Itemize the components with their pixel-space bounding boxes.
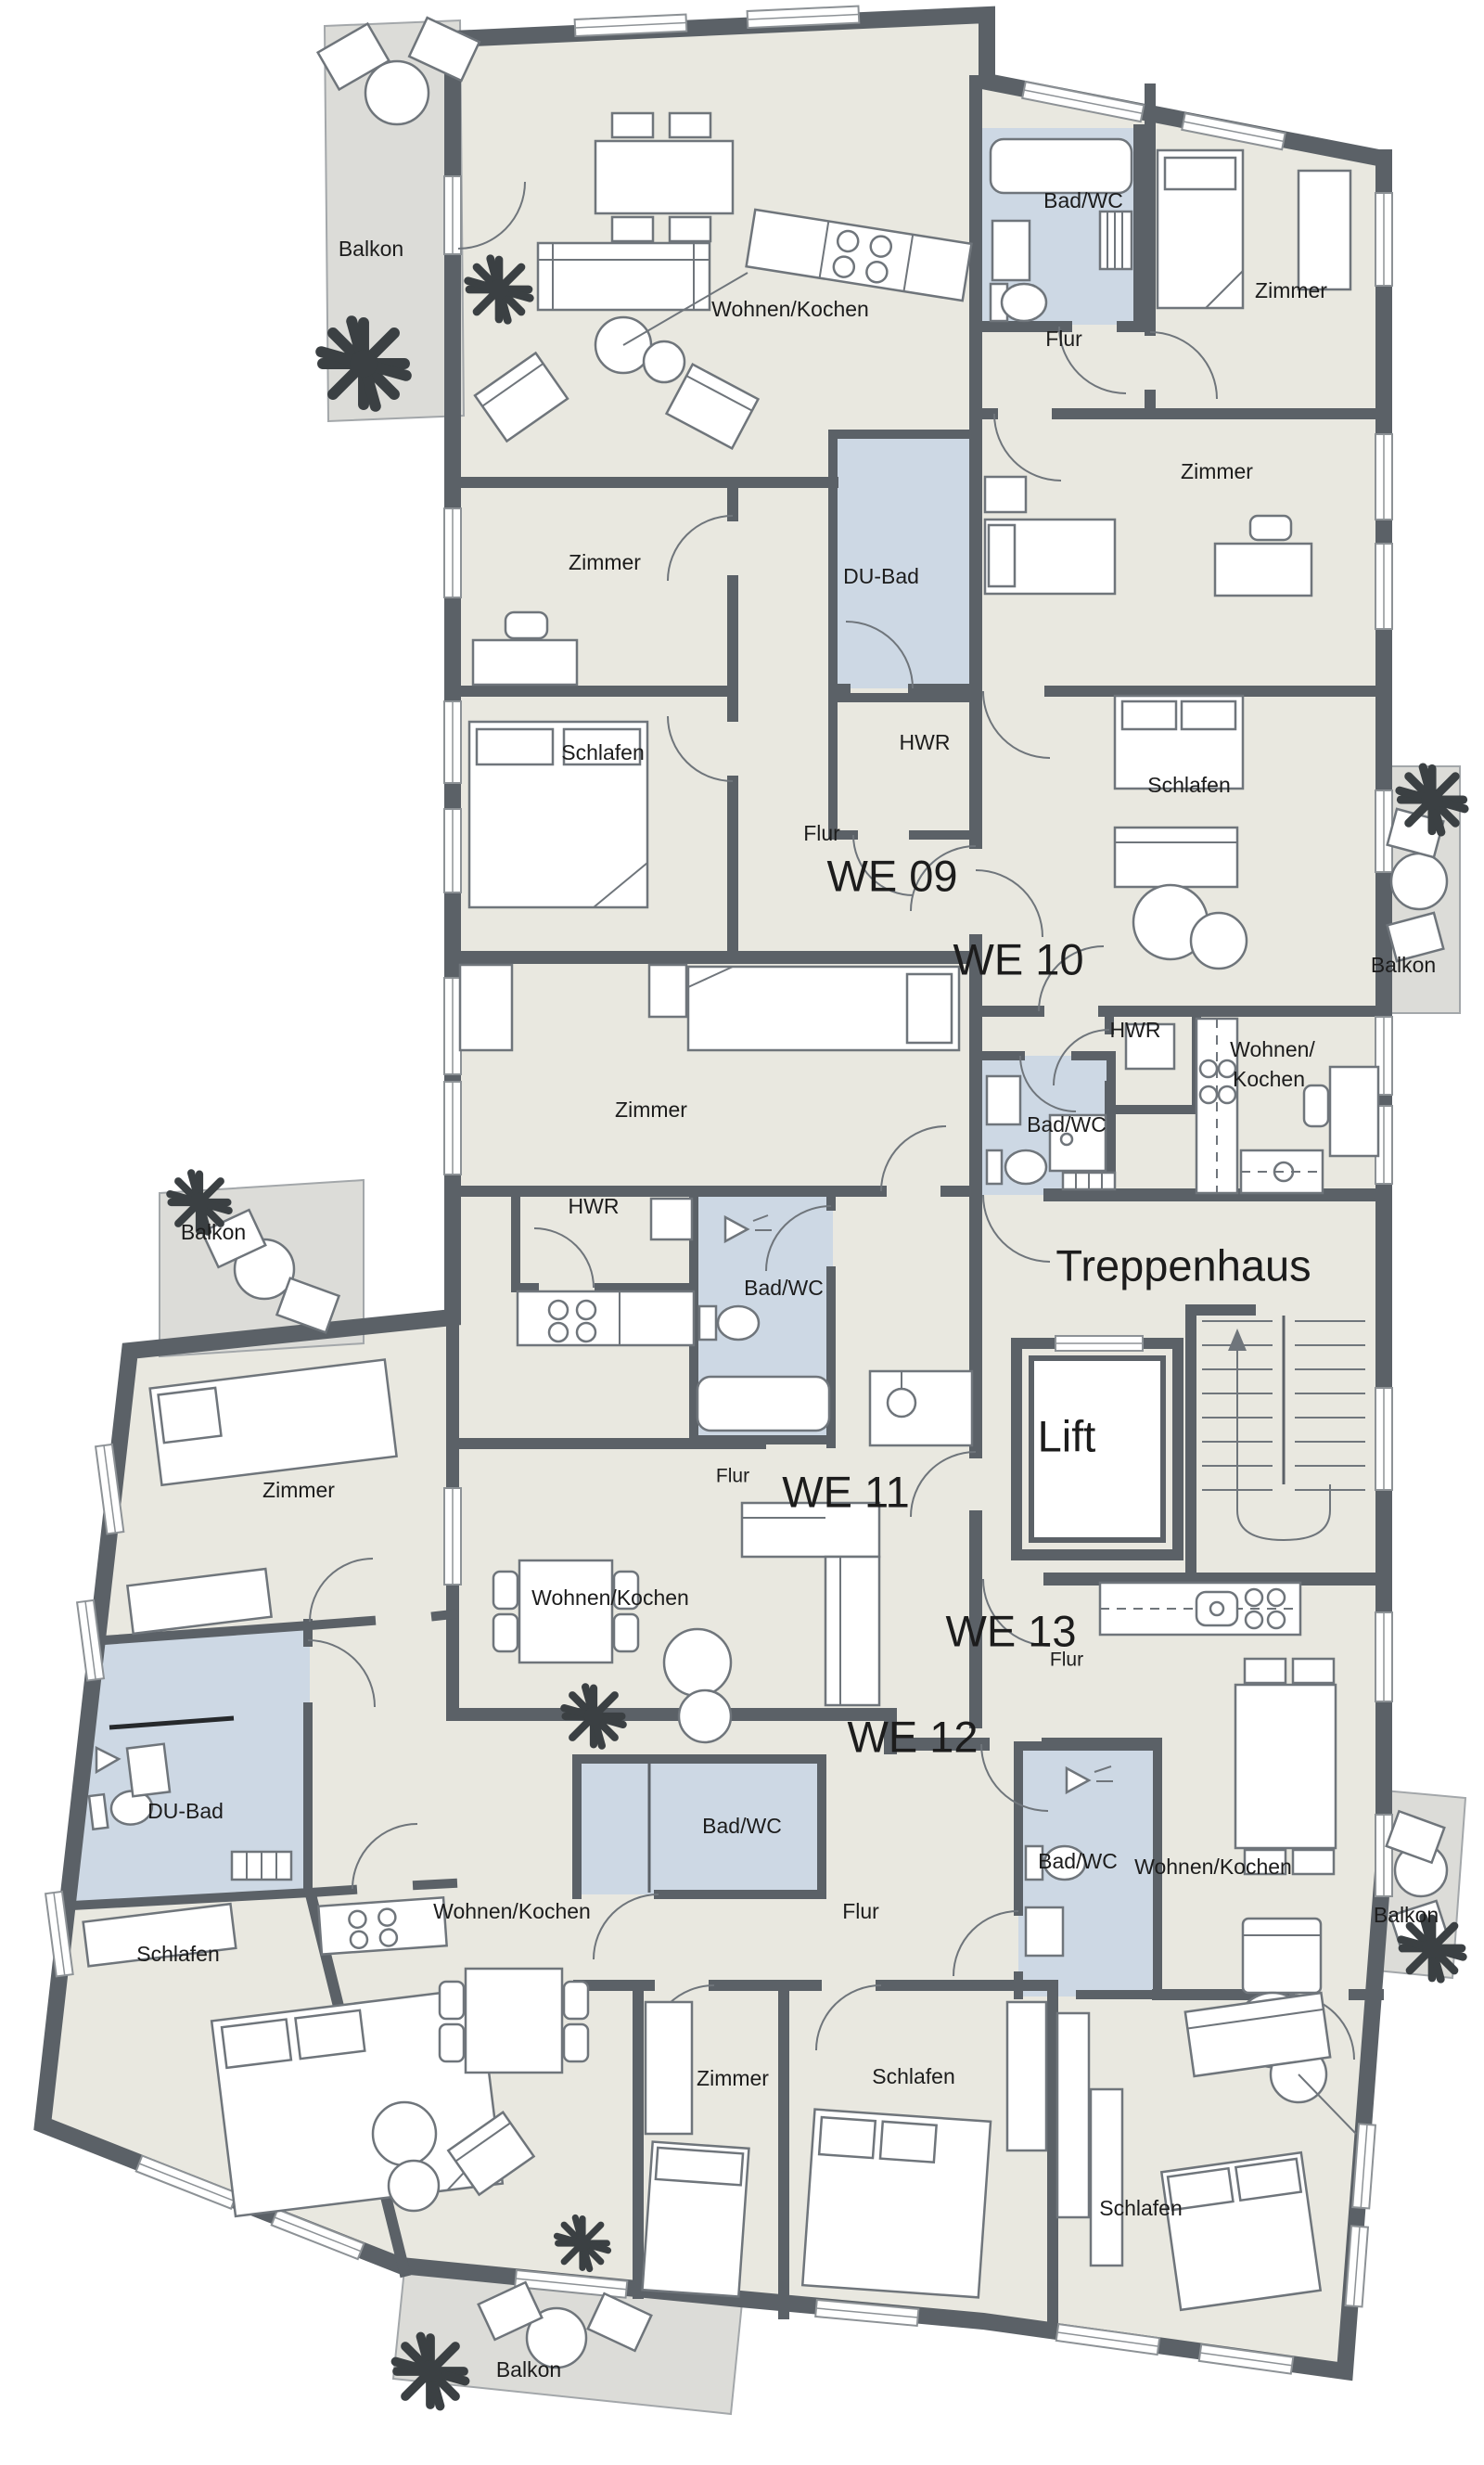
label-schlafen-we13: Schlafen [1099,2196,1183,2220]
label-bad-wc-we10-top: Bad/WC [1043,188,1123,212]
label-flur-we10-top: Flur [1045,327,1082,351]
label-bad-wc-we11: Bad/WC [744,1276,824,1300]
label-we12: WE 12 [847,1712,978,1761]
label-wohnen-kochen-we11: Wohnen/Kochen [531,1586,689,1610]
floor-plan-svg: BalkonWohnen/KochenBad/WCFlurZimmerZimme… [0,0,1484,2465]
label-hwr-we11: HWR [569,1194,620,1218]
plant-icon [396,2337,466,2407]
label-flur-we09: Flur [803,821,840,845]
label-balkon-right: Balkon [1371,953,1436,977]
label-du-bad-we09: DU-Bad [843,564,919,588]
label-we09: WE 09 [826,851,957,900]
label-bad-wc-we12: Bad/WC [702,1814,782,1838]
label-hwr-we10: HWR [1110,1018,1161,1042]
label-balkon-top-left: Balkon [339,237,403,261]
plant-icon [468,259,531,321]
label-wohnen-we10-line1: Wohnen/ [1230,1037,1315,1061]
label-wohnen-we10-line2: Kochen [1233,1067,1305,1091]
label-zimmer-we10-top: Zimmer [1255,278,1327,302]
label-lift: Lift [1038,1411,1096,1460]
label-zimmer-bottom: Zimmer [697,2066,769,2090]
label-flur-we11: Flur [716,1466,749,1487]
label-treppenhaus: Treppenhaus [1055,1240,1311,1290]
floor-plan: BalkonWohnen/KochenBad/WCFlurZimmerZimme… [0,0,1484,2465]
plant-icon [557,2218,608,2269]
label-zimmer-we11: Zimmer [615,1098,687,1122]
label-balkon-left-mid: Balkon [181,1220,246,1244]
label-wohnen-kochen-we12: Wohnen/Kochen [433,1899,591,1923]
label-zimmer-we12: Zimmer [262,1478,335,1502]
du-bad-we09 [833,434,974,688]
label-bad-wc-we13: Bad/WC [1038,1849,1118,1873]
label-schlafen-bottom: Schlafen [872,2064,955,2088]
label-we13: WE 13 [945,1606,1076,1655]
label-balkon-bottom: Balkon [496,2357,561,2382]
label-flur-we13: Flur [1050,1650,1083,1671]
label-we10: WE 10 [953,934,1083,983]
plant-icon [564,1687,622,1745]
label-schlafen-we10: Schlafen [1147,773,1231,797]
label-zimmer-we09: Zimmer [569,550,641,574]
label-flur-we12: Flur [842,1899,879,1923]
label-wohnen-kochen-we09: Wohnen/Kochen [711,297,869,321]
label-schlafen-we12: Schlafen [136,1942,220,1966]
bath-we12 [577,1759,822,1894]
label-bad-wc-we10: Bad/WC [1027,1112,1107,1136]
label-hwr-we09: HWR [900,730,951,754]
plant-icon [1400,767,1465,832]
label-balkon-bottom-right: Balkon [1374,1903,1439,1927]
plant-icon [321,321,406,406]
label-du-bad-we12: DU-Bad [147,1799,224,1823]
label-wohnen-kochen-we13: Wohnen/Kochen [1134,1855,1292,1879]
label-zimmer-we10-mid: Zimmer [1181,459,1253,483]
label-we11: WE 11 [782,1467,910,1516]
label-schlafen-we09: Schlafen [561,740,645,764]
